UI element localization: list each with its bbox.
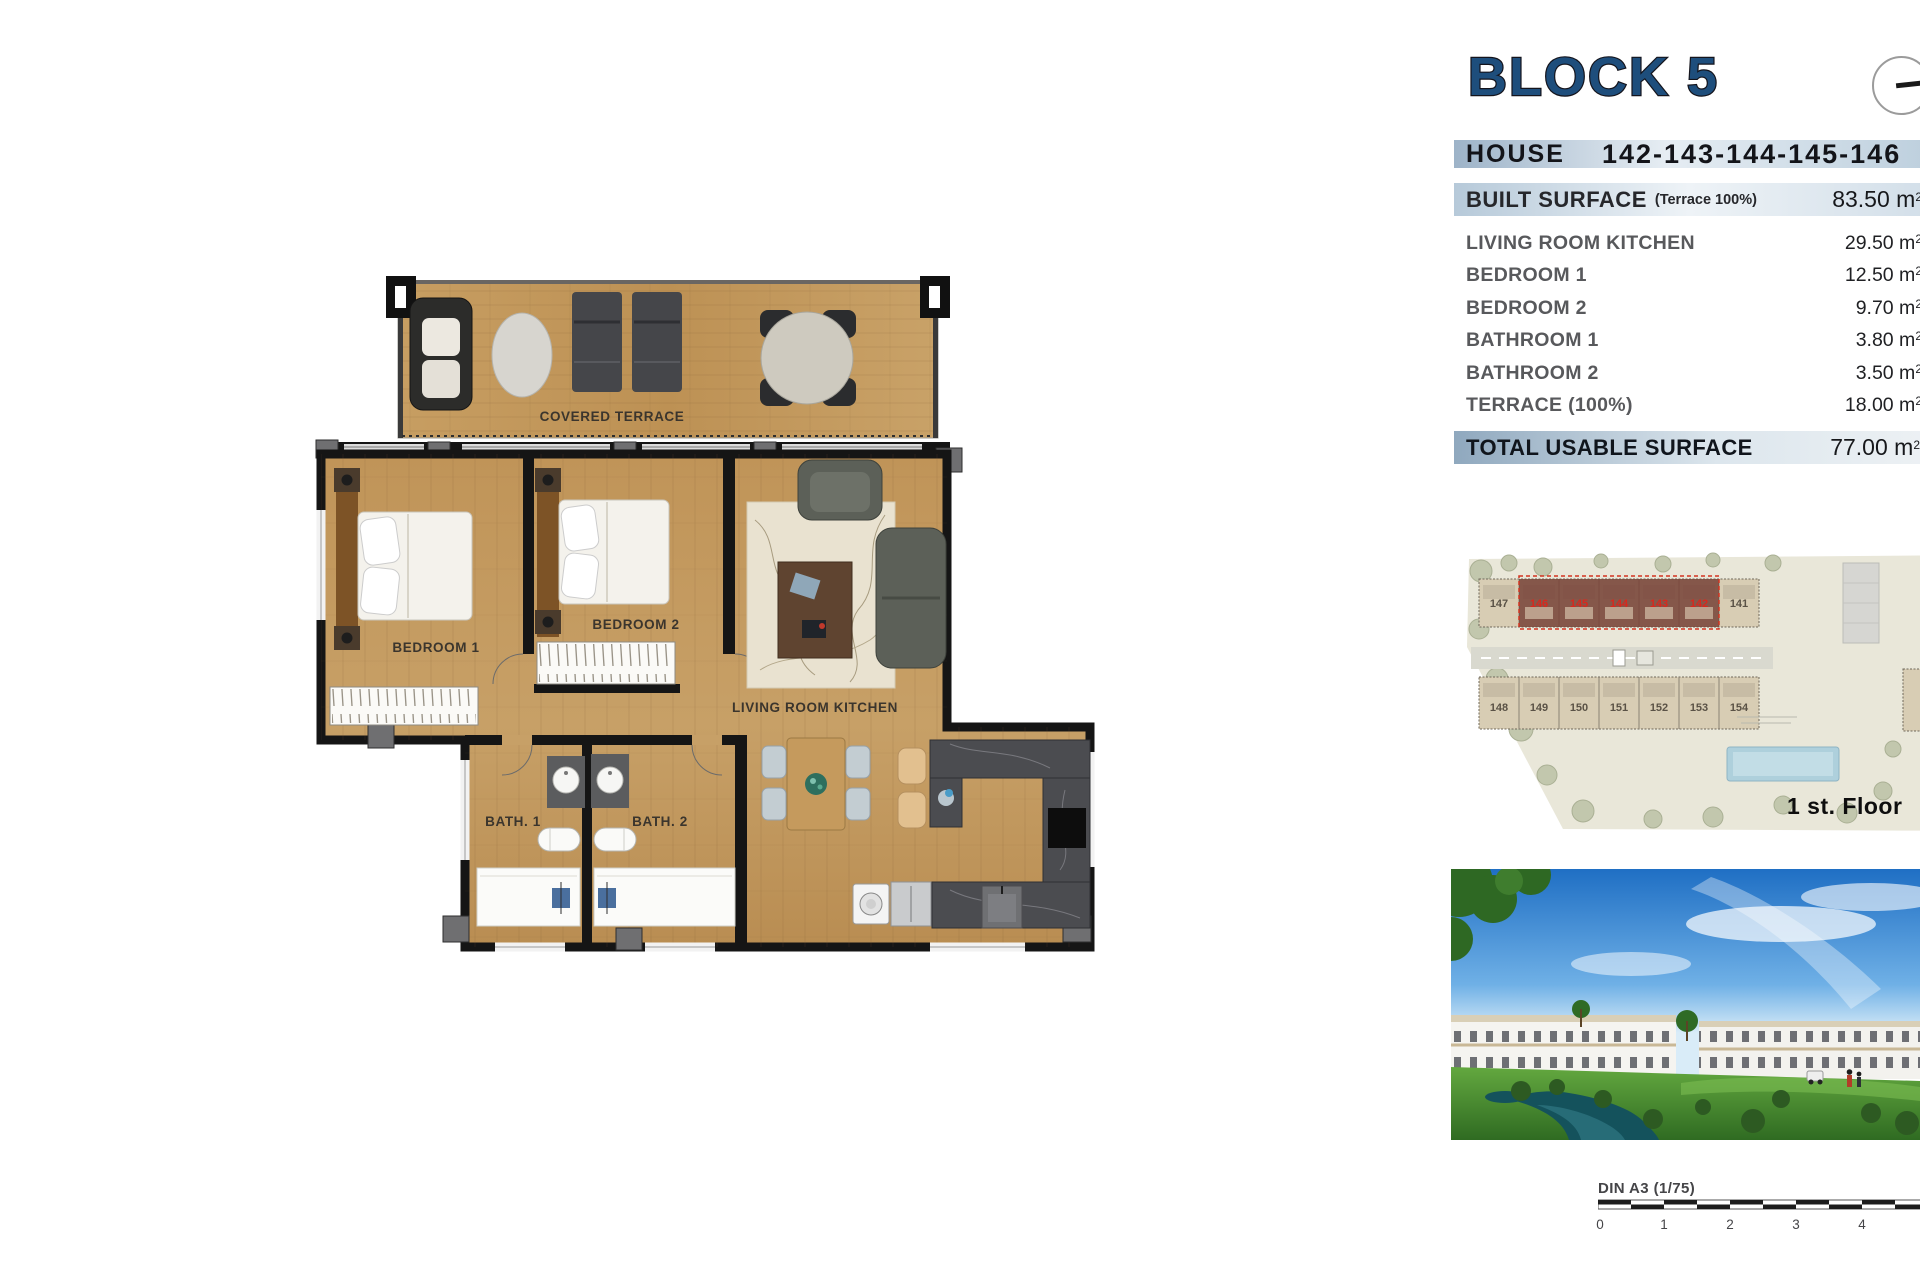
- coffee-table: [778, 562, 852, 658]
- property-photo: [1451, 869, 1920, 1140]
- row-label: LIVING ROOM KITCHEN: [1466, 232, 1695, 255]
- label-covered-terrace: COVERED TERRACE: [540, 409, 685, 424]
- total-value: 77.00 m2: [1830, 434, 1920, 461]
- site-unit-number: 149: [1530, 702, 1548, 714]
- row-label: BEDROOM 1: [1466, 264, 1587, 287]
- total-label: TOTAL USABLE SURFACE: [1466, 435, 1753, 461]
- scale-ticks: 0 1 2 3 4: [1598, 1216, 1920, 1234]
- kitchen-sink-faucet: [945, 789, 953, 797]
- scale-tick: 4: [1856, 1217, 1868, 1232]
- label-bedroom1: BEDROOM 1: [392, 640, 479, 655]
- scale-tick: 2: [1724, 1217, 1736, 1232]
- site-unit-number: 143: [1650, 598, 1668, 610]
- scale-tick: 1: [1658, 1217, 1670, 1232]
- table-row: TERRACE (100%) 18.00 m2: [1454, 390, 1920, 423]
- site-building-bottom: 148 149 150 151 152 153 154: [1479, 677, 1759, 729]
- site-unit-number: 147: [1490, 598, 1508, 610]
- row-value: 9.70 m2: [1856, 297, 1920, 320]
- site-plan-drawing: 147 146 145 144 143 142 141: [1451, 551, 1920, 834]
- built-surface-value: 83.50 m2: [1832, 186, 1920, 213]
- site-plan: 147 146 145 144 143 142 141: [1451, 551, 1920, 834]
- row-label: BATHROOM 1: [1466, 329, 1599, 352]
- site-unit-number: 151: [1610, 702, 1628, 714]
- site-building-right: [1903, 669, 1920, 731]
- scale-bar: DIN A3 (1/75) 0 1 2 3 4: [1598, 1180, 1920, 1234]
- row-value: 12.50 m2: [1845, 264, 1920, 287]
- site-unit-number: 145: [1570, 598, 1588, 610]
- scale-label: DIN A3 (1/75): [1598, 1180, 1920, 1197]
- site-unit-number: 152: [1650, 702, 1668, 714]
- terrace-oval-rug: [492, 313, 552, 397]
- built-surface-label: BUILT SURFACE: [1466, 187, 1647, 213]
- site-unit-number: 150: [1570, 702, 1588, 714]
- scale-ruler: [1598, 1199, 1920, 1211]
- row-value: 3.50 m2: [1856, 362, 1920, 385]
- terrace-sofa: [410, 298, 472, 410]
- block-title: BLOCK 5: [1468, 46, 1719, 108]
- site-road: [1471, 647, 1773, 669]
- label-bedroom2: BEDROOM 2: [592, 617, 679, 632]
- brochure-page: COVERED TERRACE: [0, 0, 1920, 1280]
- built-surface-bar: BUILT SURFACE (Terrace 100%) 83.50 m2: [1454, 183, 1920, 216]
- surface-table: LIVING ROOM KITCHEN 29.50 m2 BEDROOM 1 1…: [1454, 227, 1920, 422]
- table-row: BATHROOM 2 3.50 m2: [1454, 357, 1920, 390]
- cooktop: [1048, 808, 1086, 848]
- site-unit-number: 153: [1690, 702, 1708, 714]
- label-bath1: BATH. 1: [485, 814, 541, 829]
- site-unit-number: 146: [1530, 598, 1548, 610]
- covered-terrace-room: COVERED TERRACE: [386, 276, 950, 438]
- label-living: LIVING ROOM KITCHEN: [732, 700, 898, 715]
- scale-tick: 0: [1594, 1217, 1606, 1232]
- total-surface-bar: TOTAL USABLE SURFACE 77.00 m2: [1454, 431, 1920, 464]
- row-label: BEDROOM 2: [1466, 297, 1587, 320]
- site-unit-number: 141: [1730, 598, 1748, 610]
- north-compass-icon: [1872, 56, 1920, 115]
- site-unit-number: 154: [1730, 702, 1749, 714]
- terrace-note: (Terrace 100%): [1655, 192, 1757, 208]
- house-header-bar: HOUSE 142-143-144-145-146: [1454, 140, 1920, 168]
- row-value: 18.00 m2: [1845, 394, 1920, 417]
- terrace-dining-set: [760, 310, 856, 406]
- house-numbers: 142-143-144-145-146: [1602, 139, 1901, 170]
- row-value: 3.80 m2: [1856, 329, 1920, 352]
- table-row: BATHROOM 1 3.80 m2: [1454, 325, 1920, 358]
- site-unit-number: 148: [1490, 702, 1508, 714]
- site-building-top: 147 146 145 144 143 142 141: [1479, 576, 1759, 629]
- row-value: 29.50 m2: [1845, 232, 1920, 255]
- terrace-pillar-right: [920, 276, 950, 318]
- table-row: LIVING ROOM KITCHEN 29.50 m2: [1454, 227, 1920, 260]
- floor-label: 1 st. Floor: [1787, 793, 1902, 820]
- scale-tick: 3: [1790, 1217, 1802, 1232]
- floorplan-drawing: COVERED TERRACE: [310, 270, 1110, 970]
- table-row: BEDROOM 1 12.50 m2: [1454, 260, 1920, 293]
- label-bath2: BATH. 2: [632, 814, 688, 829]
- row-label: BATHROOM 2: [1466, 362, 1599, 385]
- row-label: TERRACE (100%): [1466, 394, 1633, 417]
- table-row: BEDROOM 2 9.70 m2: [1454, 292, 1920, 325]
- house-label: HOUSE: [1466, 140, 1565, 169]
- bedroom2-furniture: [535, 468, 675, 684]
- toilet-bath1: [538, 828, 580, 851]
- site-unit-number: 142: [1690, 598, 1708, 610]
- site-unit-number: 144: [1610, 598, 1629, 610]
- toilet-bath2: [594, 828, 636, 851]
- compass-needle: [1896, 79, 1920, 89]
